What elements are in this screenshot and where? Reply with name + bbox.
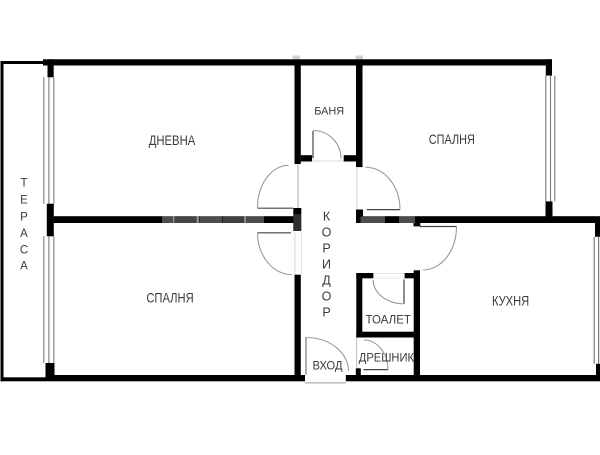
svg-text:А: А [20,261,28,273]
svg-text:ВХОД: ВХОД [313,359,343,373]
svg-text:Е: Е [20,195,28,207]
svg-text:Р: Р [322,306,330,320]
svg-text:ТОАЛЕТ: ТОАЛЕТ [365,313,411,327]
svg-text:ДНЕВНА: ДНЕВНА [149,132,196,148]
svg-text:СПАЛНЯ: СПАЛНЯ [146,290,193,306]
svg-text:Р: Р [20,212,28,224]
svg-text:Д: Д [322,274,331,288]
svg-text:Т: Т [20,178,27,190]
svg-text:А: А [20,228,28,240]
svg-text:Р: Р [322,242,330,256]
svg-text:С: С [20,244,28,256]
svg-text:БАНЯ: БАНЯ [314,106,344,118]
svg-text:КУХНЯ: КУХНЯ [492,292,529,308]
svg-text:О: О [322,290,332,304]
svg-text:И: И [322,258,331,272]
svg-text:О: О [322,226,332,240]
svg-text:СПАЛНЯ: СПАЛНЯ [429,131,475,147]
svg-text:К: К [323,210,331,224]
svg-text:ДРЕШНИК: ДРЕШНИК [359,353,414,365]
